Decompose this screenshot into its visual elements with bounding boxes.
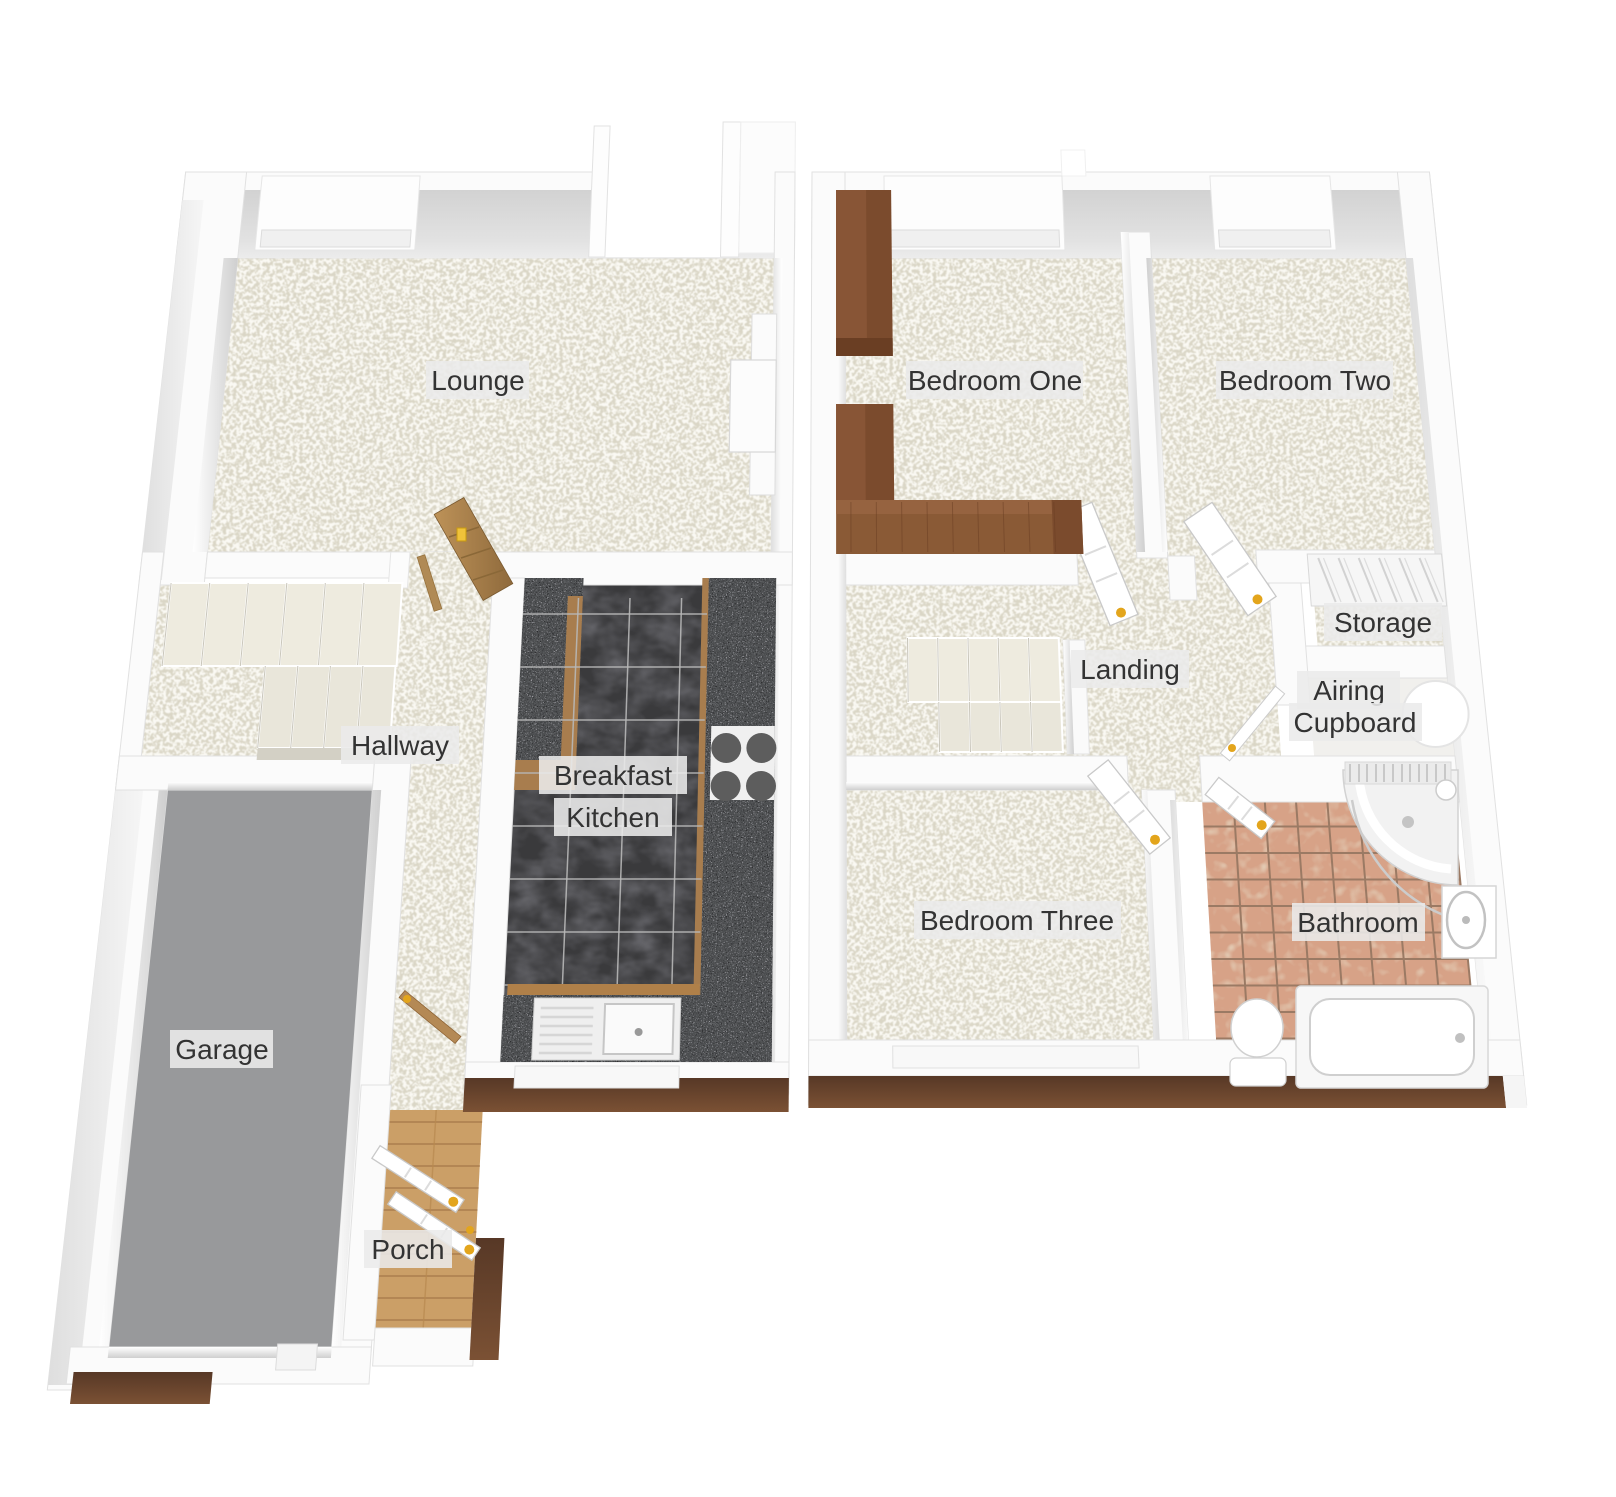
svg-text:Breakfast: Breakfast [554, 760, 672, 791]
svg-text:Storage: Storage [1334, 607, 1432, 638]
svg-text:Bedroom One: Bedroom One [908, 365, 1082, 396]
svg-text:Garage: Garage [175, 1034, 268, 1065]
svg-text:Airing: Airing [1313, 675, 1385, 706]
svg-text:Bedroom Two: Bedroom Two [1219, 365, 1391, 396]
svg-text:Cupboard: Cupboard [1294, 707, 1417, 738]
svg-text:Hallway: Hallway [351, 730, 449, 761]
svg-text:Kitchen: Kitchen [566, 802, 659, 833]
svg-text:Lounge: Lounge [431, 365, 524, 396]
svg-text:Landing: Landing [1080, 654, 1180, 685]
svg-text:Porch: Porch [371, 1234, 444, 1265]
svg-text:Bedroom Three: Bedroom Three [920, 905, 1114, 936]
svg-text:Bathroom: Bathroom [1297, 907, 1418, 938]
